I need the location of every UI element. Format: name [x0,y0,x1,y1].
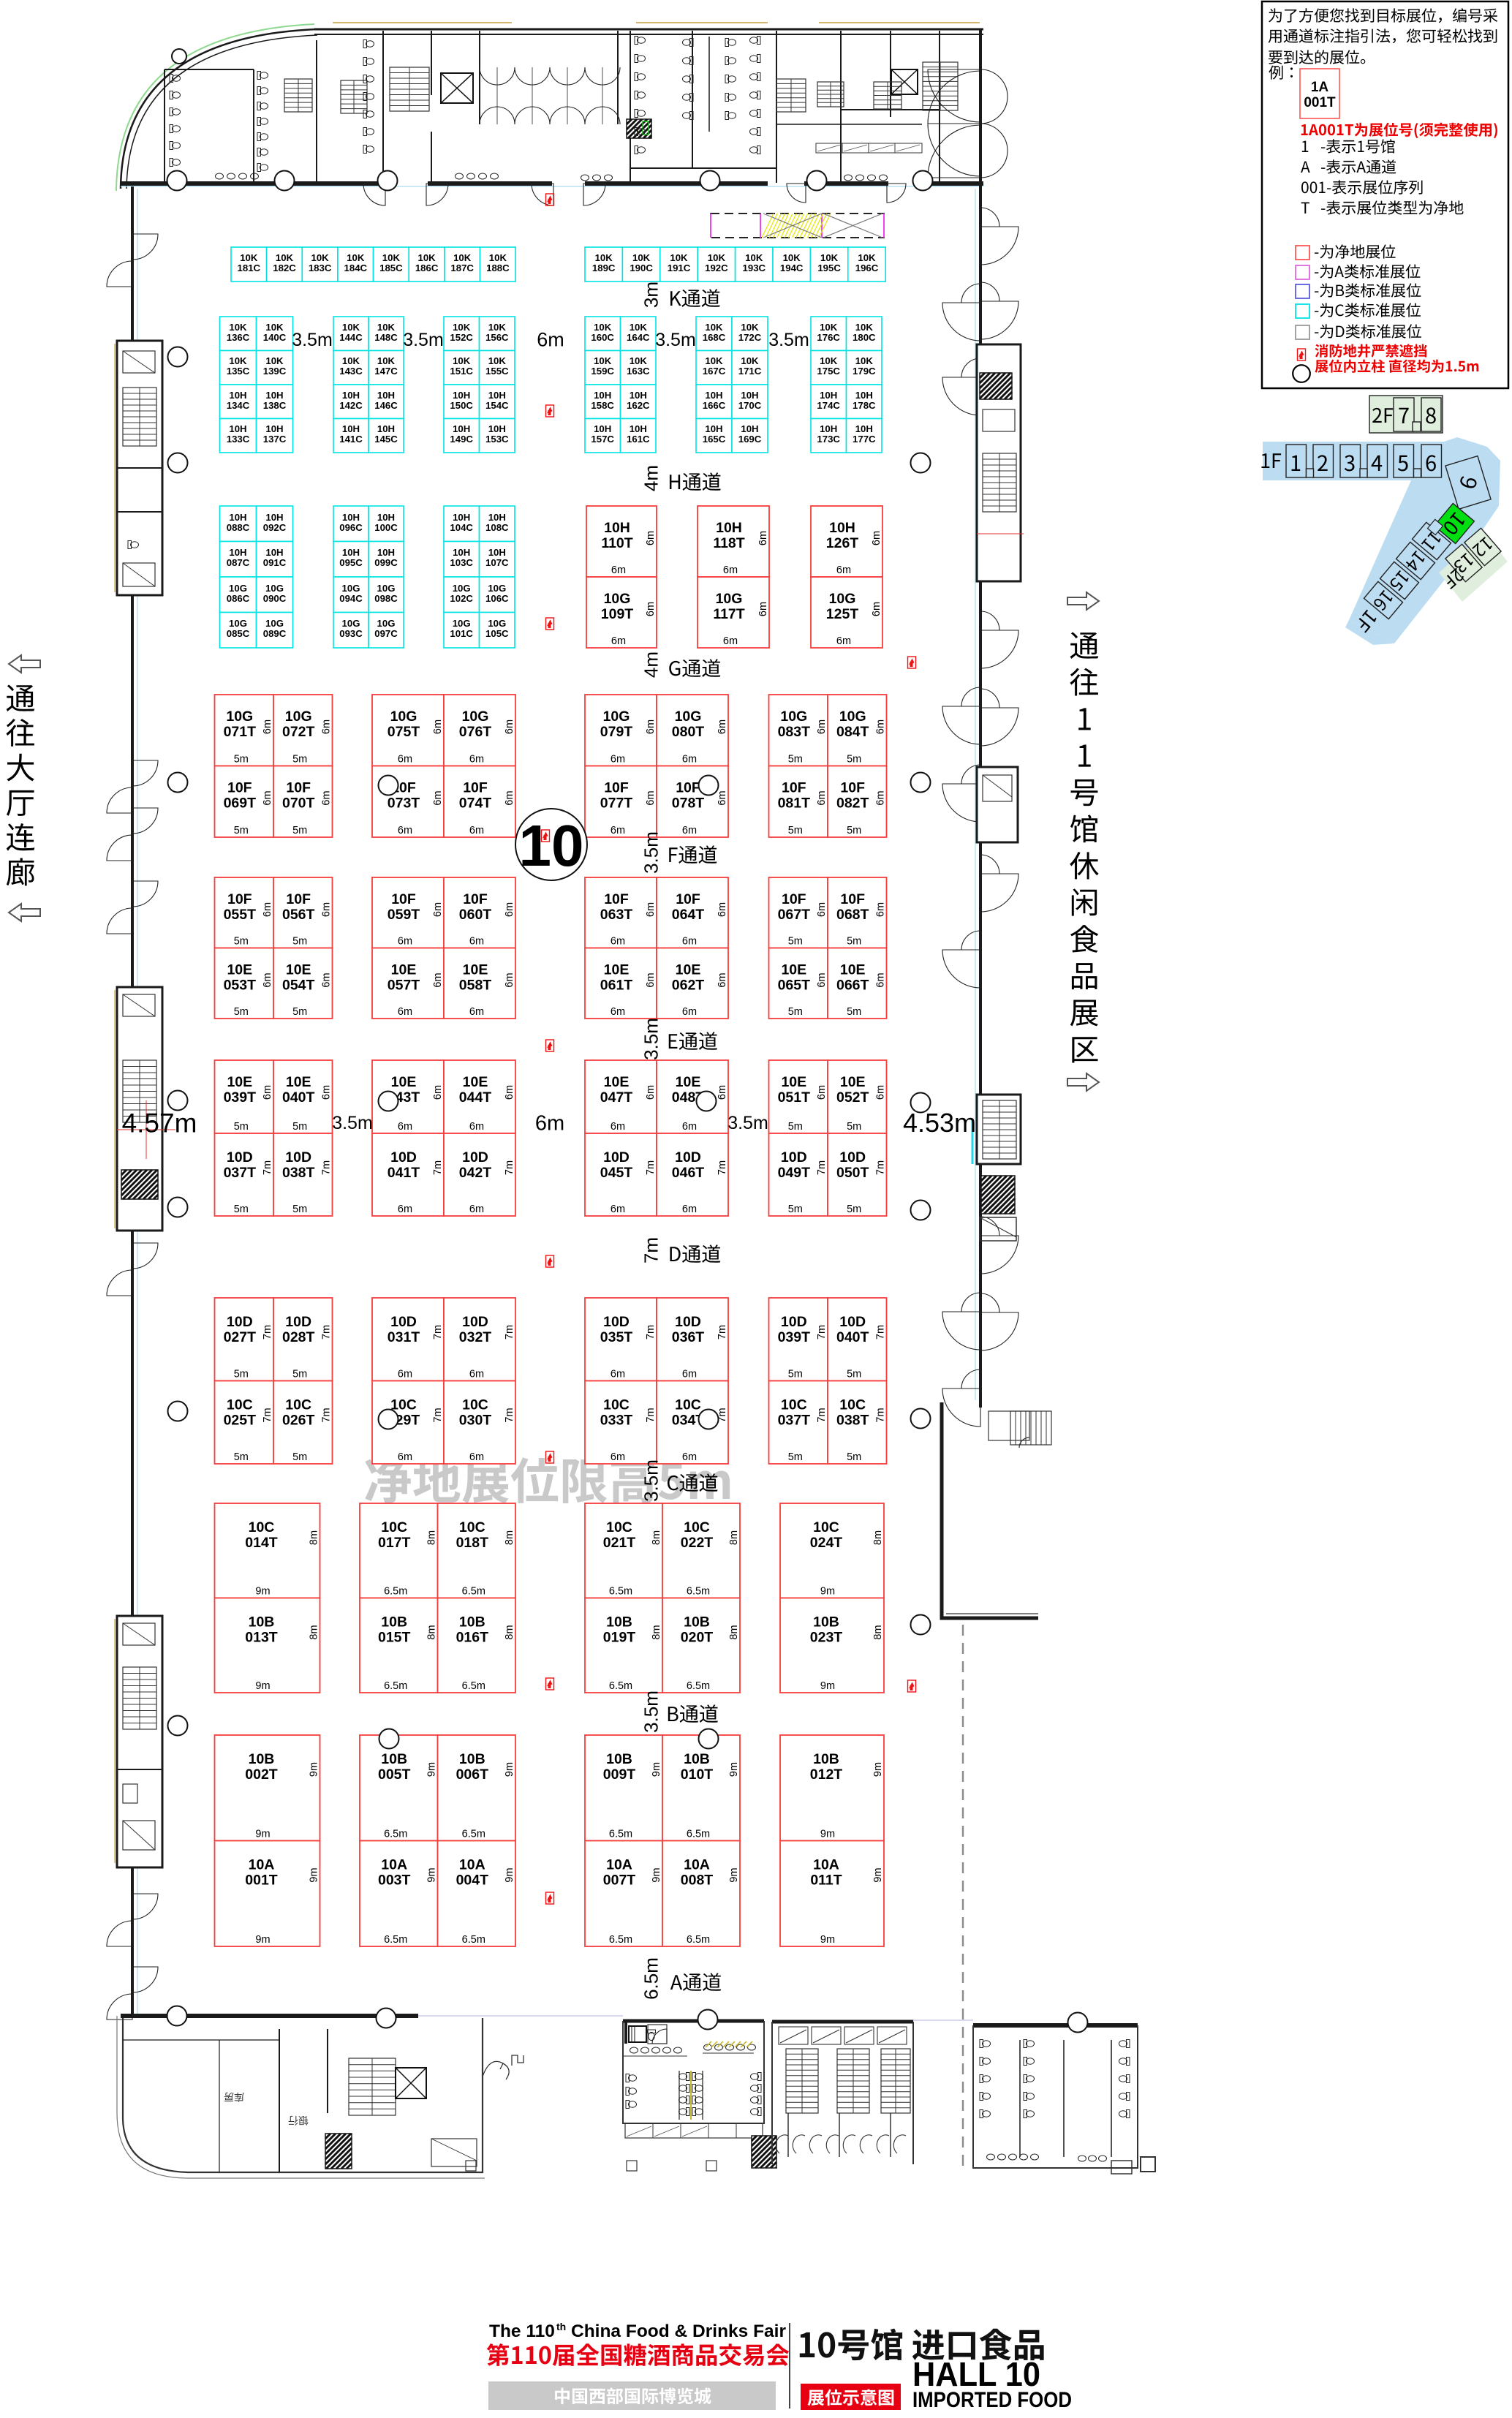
svg-text:9m: 9m [820,1586,835,1598]
svg-text:10H: 10H [705,390,722,401]
svg-text:095C: 095C [339,557,363,568]
svg-text:6m: 6m [682,1204,697,1215]
svg-text:069T: 069T [224,796,257,812]
svg-text:7m: 7m [262,1160,273,1175]
svg-text:6m: 6m [398,1121,412,1133]
svg-text:075T: 075T [388,724,420,740]
svg-text:4.53m: 4.53m [903,1108,976,1138]
svg-text:6m: 6m [537,329,564,351]
svg-text:10K: 10K [630,355,648,366]
svg-text:080T: 080T [672,724,705,740]
svg-text:092C: 092C [263,522,287,533]
svg-text:10E: 10E [840,962,866,978]
svg-text:6m: 6m [469,825,484,836]
svg-text:10H: 10H [716,520,742,536]
svg-text:10B: 10B [381,1614,407,1631]
svg-text:10G: 10G [342,618,360,629]
svg-text:10H: 10H [377,547,395,558]
svg-text:10G: 10G [229,583,247,594]
svg-text:5m: 5m [847,1006,861,1018]
svg-text:5m: 5m [234,1121,249,1133]
svg-text:10K: 10K [708,252,726,263]
svg-text:10B: 10B [381,1751,407,1767]
svg-text:022T: 022T [681,1535,714,1551]
svg-text:9m: 9m [728,1867,740,1882]
svg-text:5m: 5m [292,1204,307,1215]
svg-text:10G: 10G [716,591,743,607]
svg-text:10K: 10K [594,355,612,366]
svg-text:039T: 039T [224,1089,257,1106]
svg-text:045T: 045T [600,1165,633,1181]
svg-text:026T: 026T [282,1413,315,1429]
svg-text:5m: 5m [234,1204,249,1215]
svg-text:183C: 183C [309,262,332,273]
svg-text:6m: 6m [398,1006,412,1018]
svg-text:6.5m: 6.5m [687,1934,710,1946]
svg-text:10K: 10K [377,322,396,333]
svg-text:6m: 6m [398,1451,412,1463]
svg-text:10G: 10G [462,709,489,725]
svg-text:105C: 105C [485,628,509,639]
svg-text:10E: 10E [391,1074,417,1090]
svg-text:10H: 10H [265,390,283,401]
svg-text:6m: 6m [645,531,657,545]
svg-text:10D: 10D [603,1314,630,1330]
svg-text:10H: 10H [705,423,722,434]
svg-text:10B: 10B [813,1614,839,1631]
svg-text:10H: 10H [229,423,246,434]
svg-text:10K: 10K [670,252,688,263]
svg-text:10A: 10A [249,1857,275,1873]
svg-text:10C: 10C [390,1397,417,1413]
svg-text:6.5m: 6.5m [462,1829,485,1840]
svg-text:10K: 10K [488,322,507,333]
svg-text:10H: 10H [630,423,647,434]
svg-text:10B: 10B [606,1751,632,1767]
svg-text:5m: 5m [292,1369,307,1380]
svg-text:10A: 10A [813,1857,839,1873]
svg-text:10K: 10K [594,322,612,333]
svg-text:6m: 6m [717,902,728,917]
svg-text:135C: 135C [227,366,250,377]
svg-text:141C: 141C [339,434,363,445]
svg-text:001T: 001T [245,1873,278,1889]
svg-text:10F: 10F [286,780,311,796]
svg-text:9m: 9m [426,1762,438,1777]
svg-text:10E: 10E [463,962,488,978]
svg-text:6m: 6m [682,1451,697,1463]
svg-text:10K: 10K [265,355,284,366]
svg-text:10C: 10C [459,1519,485,1535]
svg-text:10K: 10K [342,355,360,366]
svg-text:3.5m: 3.5m [640,831,662,874]
svg-text:169C: 169C [738,434,762,445]
svg-text:155C: 155C [485,366,509,377]
svg-text:5m: 5m [292,1006,307,1018]
svg-text:023T: 023T [810,1630,843,1646]
svg-text:6m: 6m [645,790,657,805]
svg-text:163C: 163C [627,366,650,377]
svg-text:10G: 10G [604,591,631,607]
svg-text:107C: 107C [485,557,509,568]
svg-text:037T: 037T [778,1413,811,1429]
svg-text:174C: 174C [817,400,840,411]
svg-text:067T: 067T [778,907,811,923]
svg-text:7m: 7m [875,1160,887,1175]
svg-text:096C: 096C [339,522,363,533]
svg-text:10K: 10K [783,252,801,263]
svg-text:6m: 6m [836,564,851,576]
svg-text:10C: 10C [462,1397,488,1413]
svg-text:7m: 7m [816,1325,828,1340]
svg-text:10H: 10H [630,390,647,401]
svg-text:6m: 6m [432,1085,444,1100]
svg-text:6.5m: 6.5m [687,1680,710,1692]
svg-text:10F: 10F [227,780,252,796]
svg-text:10H: 10H [741,390,758,401]
svg-text:191C: 191C [668,262,691,273]
svg-text:6m: 6m [469,936,484,948]
svg-text:10H: 10H [488,390,506,401]
svg-text:10B: 10B [459,1614,485,1631]
svg-text:5m: 5m [292,754,307,766]
svg-text:167C: 167C [703,366,726,377]
svg-text:10K: 10K [453,355,471,366]
svg-text:10G: 10G [377,583,396,594]
svg-text:144C: 144C [339,332,363,343]
svg-text:6m: 6m [321,1085,333,1100]
svg-text:10F: 10F [840,780,865,796]
svg-text:10H: 10H [829,520,855,536]
svg-text:3.5m: 3.5m [727,1113,768,1133]
svg-text:187C: 187C [450,262,474,273]
svg-text:003T: 003T [378,1873,411,1889]
svg-text:7m: 7m [645,1160,657,1175]
svg-text:10C: 10C [675,1397,701,1413]
svg-text:079T: 079T [600,724,633,740]
svg-text:th: th [556,2321,566,2332]
svg-text:7m: 7m [640,1237,662,1263]
svg-text:7m: 7m [717,1160,728,1175]
svg-text:047T: 047T [600,1089,633,1106]
svg-text:10C: 10C [606,1519,632,1535]
svg-text:185C: 185C [379,262,403,273]
svg-text:8m: 8m [872,1530,884,1545]
svg-text:10E: 10E [286,1074,311,1090]
svg-text:10K: 10K [377,355,396,366]
svg-text:104C: 104C [450,522,473,533]
svg-text:6m: 6m [875,972,887,987]
svg-text:6m: 6m [504,719,515,734]
svg-text:143C: 143C [339,366,363,377]
svg-text:060T: 060T [459,907,492,923]
svg-text:6.5m: 6.5m [384,1680,407,1692]
svg-text:10K: 10K [632,252,651,263]
svg-text:8m: 8m [504,1625,515,1639]
svg-text:005T: 005T [378,1767,411,1783]
svg-text:5m: 5m [847,1451,861,1463]
svg-text:6.5m: 6.5m [609,1586,632,1598]
svg-text:10F: 10F [604,780,629,796]
svg-text:9m: 9m [255,1680,270,1692]
svg-text:058T: 058T [459,978,492,994]
svg-text:10C: 10C [227,1397,253,1413]
svg-text:9m: 9m [309,1867,320,1882]
svg-text:10F: 10F [676,780,700,796]
svg-text:10D: 10D [781,1314,807,1330]
svg-text:3m: 3m [640,282,662,308]
svg-text:6m: 6m [682,1369,697,1380]
svg-text:088C: 088C [227,522,250,533]
svg-text:6m: 6m [816,719,828,734]
svg-text:10G: 10G [829,591,856,607]
svg-text:10K: 10K [489,252,507,263]
svg-text:9m: 9m [820,1680,835,1692]
svg-text:6m: 6m [398,1204,412,1215]
svg-text:5m: 5m [847,1369,861,1380]
svg-text:052T: 052T [836,1089,869,1106]
svg-text:10D: 10D [227,1149,253,1165]
svg-text:10K: 10K [705,355,723,366]
svg-text:6m: 6m [723,564,738,576]
svg-text:030T: 030T [459,1413,492,1429]
svg-text:5m: 5m [847,1204,861,1215]
svg-text:3.5m: 3.5m [640,1459,662,1502]
svg-text:6m: 6m [875,902,887,917]
svg-text:6m: 6m [321,902,333,917]
svg-text:038T: 038T [282,1165,315,1181]
svg-text:10G: 10G [453,618,471,629]
svg-text:10G: 10G [229,618,247,629]
svg-text:055T: 055T [224,907,257,923]
svg-text:016T: 016T [456,1630,489,1646]
svg-text:10D: 10D [839,1149,866,1165]
svg-text:5m: 5m [788,936,803,948]
svg-text:180C: 180C [853,332,876,343]
svg-text:10D: 10D [390,1314,417,1330]
svg-text:3.5m: 3.5m [640,1690,662,1733]
svg-text:086C: 086C [227,593,250,604]
svg-text:6.5m: 6.5m [609,1680,632,1692]
svg-text:6m: 6m [717,972,728,987]
svg-text:5m: 5m [234,1006,249,1018]
svg-text:046T: 046T [672,1165,705,1181]
svg-text:6m: 6m [611,1006,625,1018]
svg-text:6m: 6m [469,1451,484,1463]
svg-text:072T: 072T [282,724,315,740]
svg-text:5m: 5m [847,825,861,836]
svg-text:015T: 015T [378,1630,411,1646]
svg-text:158C: 158C [591,400,614,411]
svg-text:125T: 125T [826,606,859,622]
svg-text:10K: 10K [229,322,247,333]
svg-text:6m: 6m [262,790,273,805]
svg-text:6m: 6m [757,602,769,616]
svg-text:098C: 098C [374,593,398,604]
svg-text:10B: 10B [606,1614,632,1631]
svg-text:10K: 10K [488,355,507,366]
svg-text:097C: 097C [374,628,398,639]
svg-text:6m: 6m [398,1369,412,1380]
svg-text:151C: 151C [450,366,473,377]
svg-text:064T: 064T [672,907,705,923]
svg-text:10K: 10K [382,252,401,263]
svg-text:10K: 10K [858,252,876,263]
svg-text:010T: 010T [681,1767,714,1783]
svg-text:8m: 8m [426,1625,438,1639]
svg-text:6m: 6m [321,719,333,734]
svg-text:10H: 10H [453,512,470,523]
svg-text:10H: 10H [342,547,360,558]
svg-text:10H: 10H [855,423,873,434]
svg-text:10K: 10K [453,252,472,263]
svg-text:10C: 10C [813,1519,839,1535]
svg-text:10K: 10K [347,252,365,263]
svg-text:10H: 10H [377,512,395,523]
svg-text:020T: 020T [681,1630,714,1646]
svg-text:8m: 8m [309,1625,320,1639]
svg-text:106C: 106C [485,593,509,604]
svg-text:7m: 7m [432,1160,444,1175]
svg-text:021T: 021T [603,1535,636,1551]
svg-text:8m: 8m [309,1530,320,1545]
svg-text:118T: 118T [713,535,744,551]
svg-text:133C: 133C [227,434,250,445]
svg-text:6m: 6m [398,825,412,836]
svg-text:084T: 084T [836,724,869,740]
svg-text:9m: 9m [872,1762,884,1777]
svg-text:10F: 10F [391,891,416,907]
svg-text:10C: 10C [381,1519,407,1535]
svg-text:012T: 012T [810,1767,843,1783]
svg-text:007T: 007T [603,1873,636,1889]
svg-text:10H: 10H [342,512,360,523]
svg-text:6m: 6m [645,902,657,917]
svg-text:10K: 10K [820,355,838,366]
svg-text:148C: 148C [374,332,398,343]
svg-text:188C: 188C [486,262,510,273]
svg-text:181C: 181C [238,262,261,273]
svg-text:002T: 002T [245,1767,278,1783]
svg-text:6m: 6m [717,719,728,734]
svg-text:164C: 164C [627,332,650,343]
svg-text:6.5m: 6.5m [687,1829,710,1840]
svg-text:004T: 004T [456,1873,489,1889]
svg-text:5m: 5m [292,1121,307,1133]
svg-text:10D: 10D [285,1314,311,1330]
svg-text:9m: 9m [426,1867,438,1882]
svg-text:10F: 10F [782,780,806,796]
svg-text:9m: 9m [820,1829,835,1840]
svg-text:10H: 10H [594,423,611,434]
svg-text:154C: 154C [485,400,509,411]
svg-text:10D: 10D [462,1314,488,1330]
svg-text:10G: 10G [488,618,506,629]
svg-text:10K: 10K [745,252,763,263]
svg-text:6m: 6m [321,972,333,987]
svg-text:7m: 7m [262,1325,273,1340]
svg-text:140C: 140C [263,332,287,343]
svg-text:10G: 10G [453,583,471,594]
svg-text:081T: 081T [778,796,811,812]
svg-text:126T: 126T [826,535,859,551]
svg-text:10G: 10G [488,583,506,594]
svg-text:10C: 10C [603,1397,630,1413]
svg-text:6m: 6m [262,1085,273,1100]
svg-text:6m: 6m [504,790,515,805]
svg-text:10G: 10G [675,709,702,725]
svg-text:6m: 6m [262,972,273,987]
svg-text:172C: 172C [738,332,762,343]
svg-text:10E: 10E [840,1074,866,1090]
svg-text:089C: 089C [263,628,287,639]
svg-text:078T: 078T [672,796,705,812]
svg-text:6m: 6m [262,902,273,917]
svg-text:5m: 5m [788,1204,803,1215]
svg-text:137C: 137C [263,434,287,445]
svg-text:7m: 7m [875,1408,887,1422]
svg-text:193C: 193C [743,262,766,273]
svg-text:6m: 6m [398,754,412,766]
svg-text:5m: 5m [847,1121,861,1133]
svg-text:3.5m: 3.5m [655,330,696,350]
svg-text:6m: 6m [611,564,626,576]
svg-text:5m: 5m [292,936,307,948]
svg-text:057T: 057T [388,978,420,994]
svg-text:7m: 7m [321,1408,333,1422]
svg-text:10H: 10H [342,390,360,401]
svg-text:10G: 10G [603,709,630,725]
svg-text:061T: 061T [600,978,633,994]
svg-text:7m: 7m [321,1160,333,1175]
svg-text:6m: 6m [682,754,697,766]
svg-text:7m: 7m [645,1408,657,1422]
svg-text:10E: 10E [463,1074,488,1090]
svg-text:6m: 6m [645,719,657,734]
svg-text:9m: 9m [872,1867,884,1882]
svg-text:039T: 039T [778,1329,811,1345]
svg-text:10D: 10D [781,1149,807,1165]
svg-text:3.5m: 3.5m [332,1113,373,1133]
svg-text:10E: 10E [604,962,630,978]
svg-text:9m: 9m [255,1829,270,1840]
svg-text:10A: 10A [459,1857,485,1873]
svg-text:6m: 6m [611,754,625,766]
svg-text:147C: 147C [374,366,398,377]
svg-text:035T: 035T [600,1329,633,1345]
svg-text:9m: 9m [504,1762,515,1777]
svg-text:4m: 4m [640,651,662,678]
svg-text:10G: 10G [226,709,253,725]
svg-text:10G: 10G [839,709,866,725]
svg-text:184C: 184C [344,262,368,273]
svg-text:173C: 173C [817,434,840,445]
svg-text:10F: 10F [463,780,488,796]
svg-text:5m: 5m [234,936,249,948]
svg-text:6m: 6m [757,531,769,545]
svg-text:017T: 017T [378,1535,411,1551]
svg-text:8m: 8m [651,1625,662,1639]
svg-text:024T: 024T [810,1535,843,1551]
svg-text:7m: 7m [816,1408,828,1422]
svg-text:063T: 063T [600,907,633,923]
svg-text:9m: 9m [651,1867,662,1882]
svg-text:10H: 10H [265,512,283,523]
svg-text:10K: 10K [820,322,838,333]
svg-text:6.5m: 6.5m [640,1957,662,2000]
svg-text:10B: 10B [459,1751,485,1767]
svg-text:10H: 10H [377,423,395,434]
